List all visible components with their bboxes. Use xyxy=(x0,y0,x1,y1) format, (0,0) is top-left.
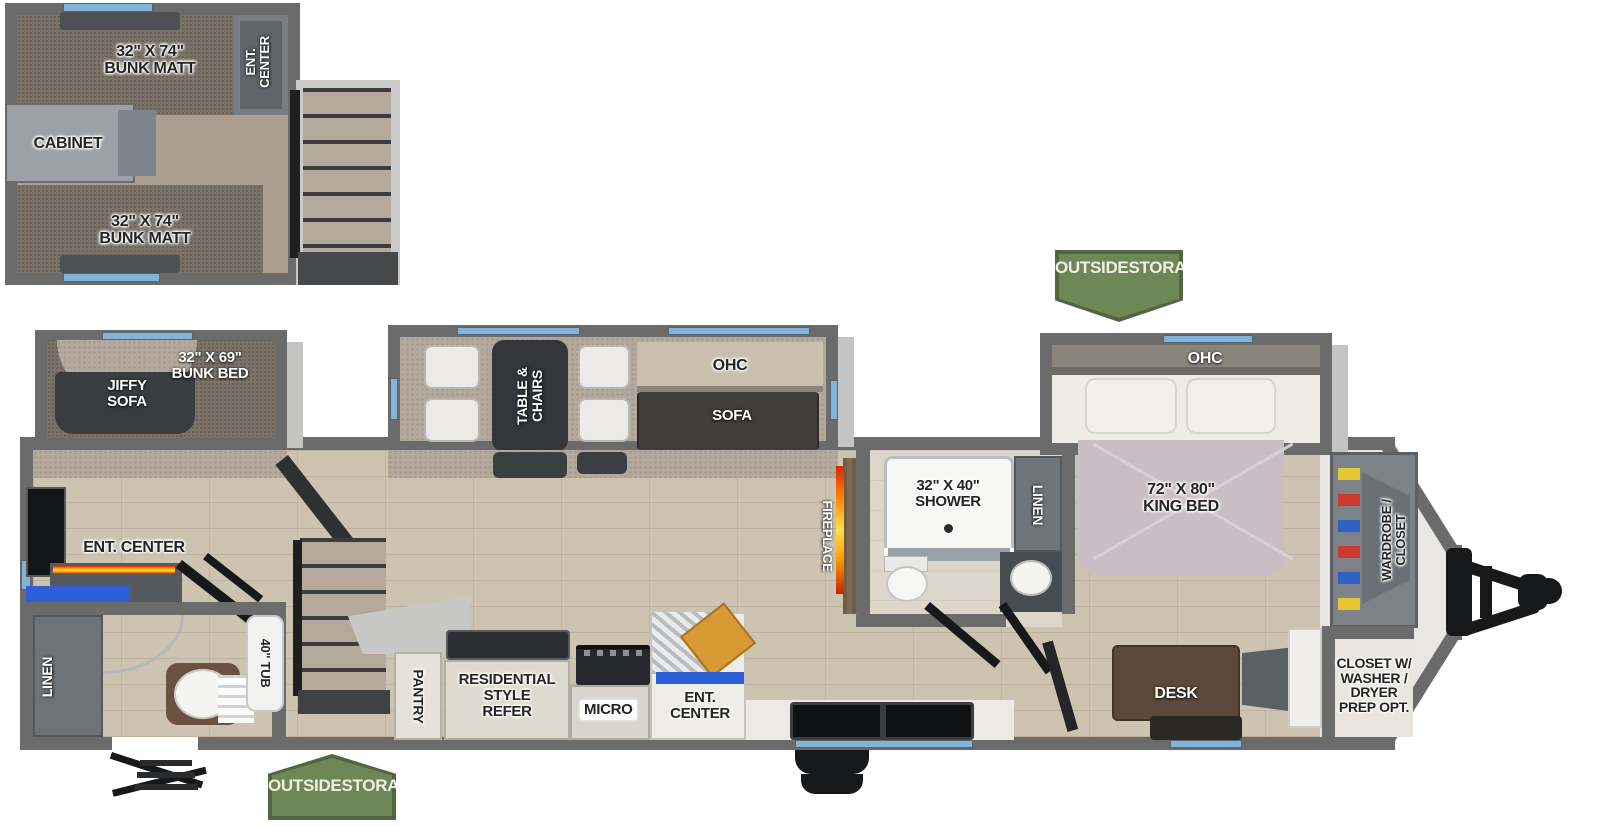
outside-storage-badge-bottom: OUTSIDESTORAGE xyxy=(268,754,396,820)
loft-bunk-top-label: 32" X 74"BUNK MATT xyxy=(90,44,210,78)
bath-wall-bottom xyxy=(856,614,1006,627)
outside-storage-badge-top: OUTSIDESTORAGE xyxy=(1055,250,1183,322)
loft-window-top xyxy=(63,3,153,12)
rear-console-shelf xyxy=(26,586,130,602)
rear-linen-label: LINEN xyxy=(40,647,56,707)
entry-steps-tread-1 xyxy=(140,760,192,766)
outside-storage-badge-top-label: OUTSIDESTORAGE xyxy=(1055,259,1183,278)
wardrobe-hanger-yellow-1 xyxy=(1338,468,1360,480)
floorplan-canvas: ENT.CENTER 32" X 74"BUNK MATT CABINET 32… xyxy=(0,0,1600,826)
king-bed-label: 72" X 80"KING BED xyxy=(1131,482,1231,516)
slide-king-extrusion xyxy=(1332,345,1348,455)
kitchen-micro-label: MICRO xyxy=(580,700,637,720)
rear-tub-label: 40" TUB xyxy=(258,628,272,698)
dinette-chair-1 xyxy=(424,345,480,389)
bath-shower-drain xyxy=(944,524,953,533)
bath-shower-label: 32" X 40"SHOWER xyxy=(898,478,998,510)
loft-window-bottom xyxy=(63,273,160,282)
entry-steps-tread-2 xyxy=(137,772,195,778)
wardrobe-hanger-yellow-2 xyxy=(1338,598,1360,610)
slide-king-window xyxy=(1163,335,1253,343)
main-entry-step-2 xyxy=(801,774,863,794)
entry-steps-tread-3 xyxy=(134,784,198,790)
living-sofa-label: SOFA xyxy=(702,408,762,424)
rear-entry-door-gap xyxy=(112,737,198,750)
loft-stairs-landing xyxy=(298,252,398,285)
rear-living-carpet xyxy=(33,450,287,478)
bedroom-window xyxy=(1170,740,1242,748)
wardrobe-hanger-red-1 xyxy=(1338,494,1360,506)
bunk-bed-label: 32" X 69"BUNK BED xyxy=(165,350,255,382)
slide-mid-extrusion xyxy=(838,337,854,447)
dinette-chair-3 xyxy=(578,345,630,389)
bed-pillow-left xyxy=(1085,378,1177,434)
living-ottoman-1 xyxy=(493,452,567,478)
loft-cabinet-front xyxy=(118,110,156,176)
main-stairs-landing xyxy=(298,690,390,714)
refer-label: RESIDENTIALSTYLEREFER xyxy=(447,672,567,719)
bath-toilet-bowl xyxy=(886,566,928,602)
main-stairs-railing xyxy=(293,540,302,696)
dinette-table-label: TABLE &CHAIRS xyxy=(515,356,545,436)
fireplace-strip xyxy=(836,466,844,594)
loft-stairs-railing xyxy=(290,90,300,258)
loft-bunk-bottom-bolster xyxy=(60,255,180,273)
bed-pillow-right xyxy=(1186,378,1276,434)
loft-stairs xyxy=(303,88,391,256)
wardrobe-hanger-blue-2 xyxy=(1338,572,1360,584)
wardrobe-hanger-red-2 xyxy=(1338,546,1360,558)
fireplace-label: FIREPLACE xyxy=(820,490,834,582)
rear-bath-wall-top xyxy=(33,602,283,615)
hitch-coupler-ball xyxy=(1536,578,1562,604)
bath-wall-right xyxy=(1062,450,1075,614)
kitchen-window xyxy=(795,740,973,748)
loft-bunk-top-bolster xyxy=(60,12,180,30)
loft-bunk-bottom-label: 32" X 74"BUNK MATT xyxy=(85,214,205,248)
slide-rear-extrusion xyxy=(287,342,303,448)
main-entry-step-1 xyxy=(795,750,869,774)
rear-ent-center-label: ENT. CENTER xyxy=(68,540,200,557)
slide-mid-window-end-right xyxy=(830,380,838,420)
loft-cabinet-label: CABINET xyxy=(14,136,122,153)
bedroom-desk xyxy=(1112,645,1240,721)
kitchen-ent-center-label: ENT.CENTER xyxy=(662,690,738,722)
kitchen-counter-accent xyxy=(656,672,744,684)
bed-ohc-label: OHC xyxy=(1175,351,1235,368)
kitchen-stove-knobs xyxy=(584,650,642,656)
slide-mid-window-end-left xyxy=(390,378,398,420)
bath-wall-left xyxy=(856,450,870,613)
rear-fireplace-strip xyxy=(53,566,175,574)
dinette-chair-4 xyxy=(578,398,630,442)
washer-closet-label: CLOSET W/WASHER / DRYERPREP OPT. xyxy=(1330,656,1418,715)
slide-mid-window-left xyxy=(457,327,580,335)
bath-sink-basin xyxy=(1010,560,1052,596)
loft-ent-center-label: ENT.CENTER xyxy=(244,20,272,104)
wardrobe-label: WARDROBE /CLOSET xyxy=(1380,477,1410,603)
kitchen-pantry-label: PANTRY xyxy=(411,662,426,732)
slide-rear-window xyxy=(102,332,193,340)
hitch-jack-post xyxy=(1480,566,1492,618)
washer-prep-appliance xyxy=(1288,628,1322,728)
wardrobe-hanger-blue-1 xyxy=(1338,520,1360,532)
living-ohc-label: OHC xyxy=(700,358,760,375)
slide-mid-window-right xyxy=(668,327,810,335)
bedroom-desk-chair xyxy=(1150,716,1242,740)
bath-linen-label: LINEN xyxy=(1031,477,1045,533)
kitchen-sink-divider xyxy=(880,704,886,738)
washer-closet-wall-top xyxy=(1322,626,1414,639)
outside-storage-badge-bottom-label: OUTSIDESTORAGE xyxy=(268,777,396,796)
dinette-chair-2 xyxy=(424,398,480,442)
living-ottoman-2 xyxy=(577,452,627,474)
jiffy-sofa-label: JIFFYSOFA xyxy=(87,378,167,410)
refer-top-griddle xyxy=(446,630,570,660)
bedroom-desk-label: DESK xyxy=(1146,686,1206,703)
